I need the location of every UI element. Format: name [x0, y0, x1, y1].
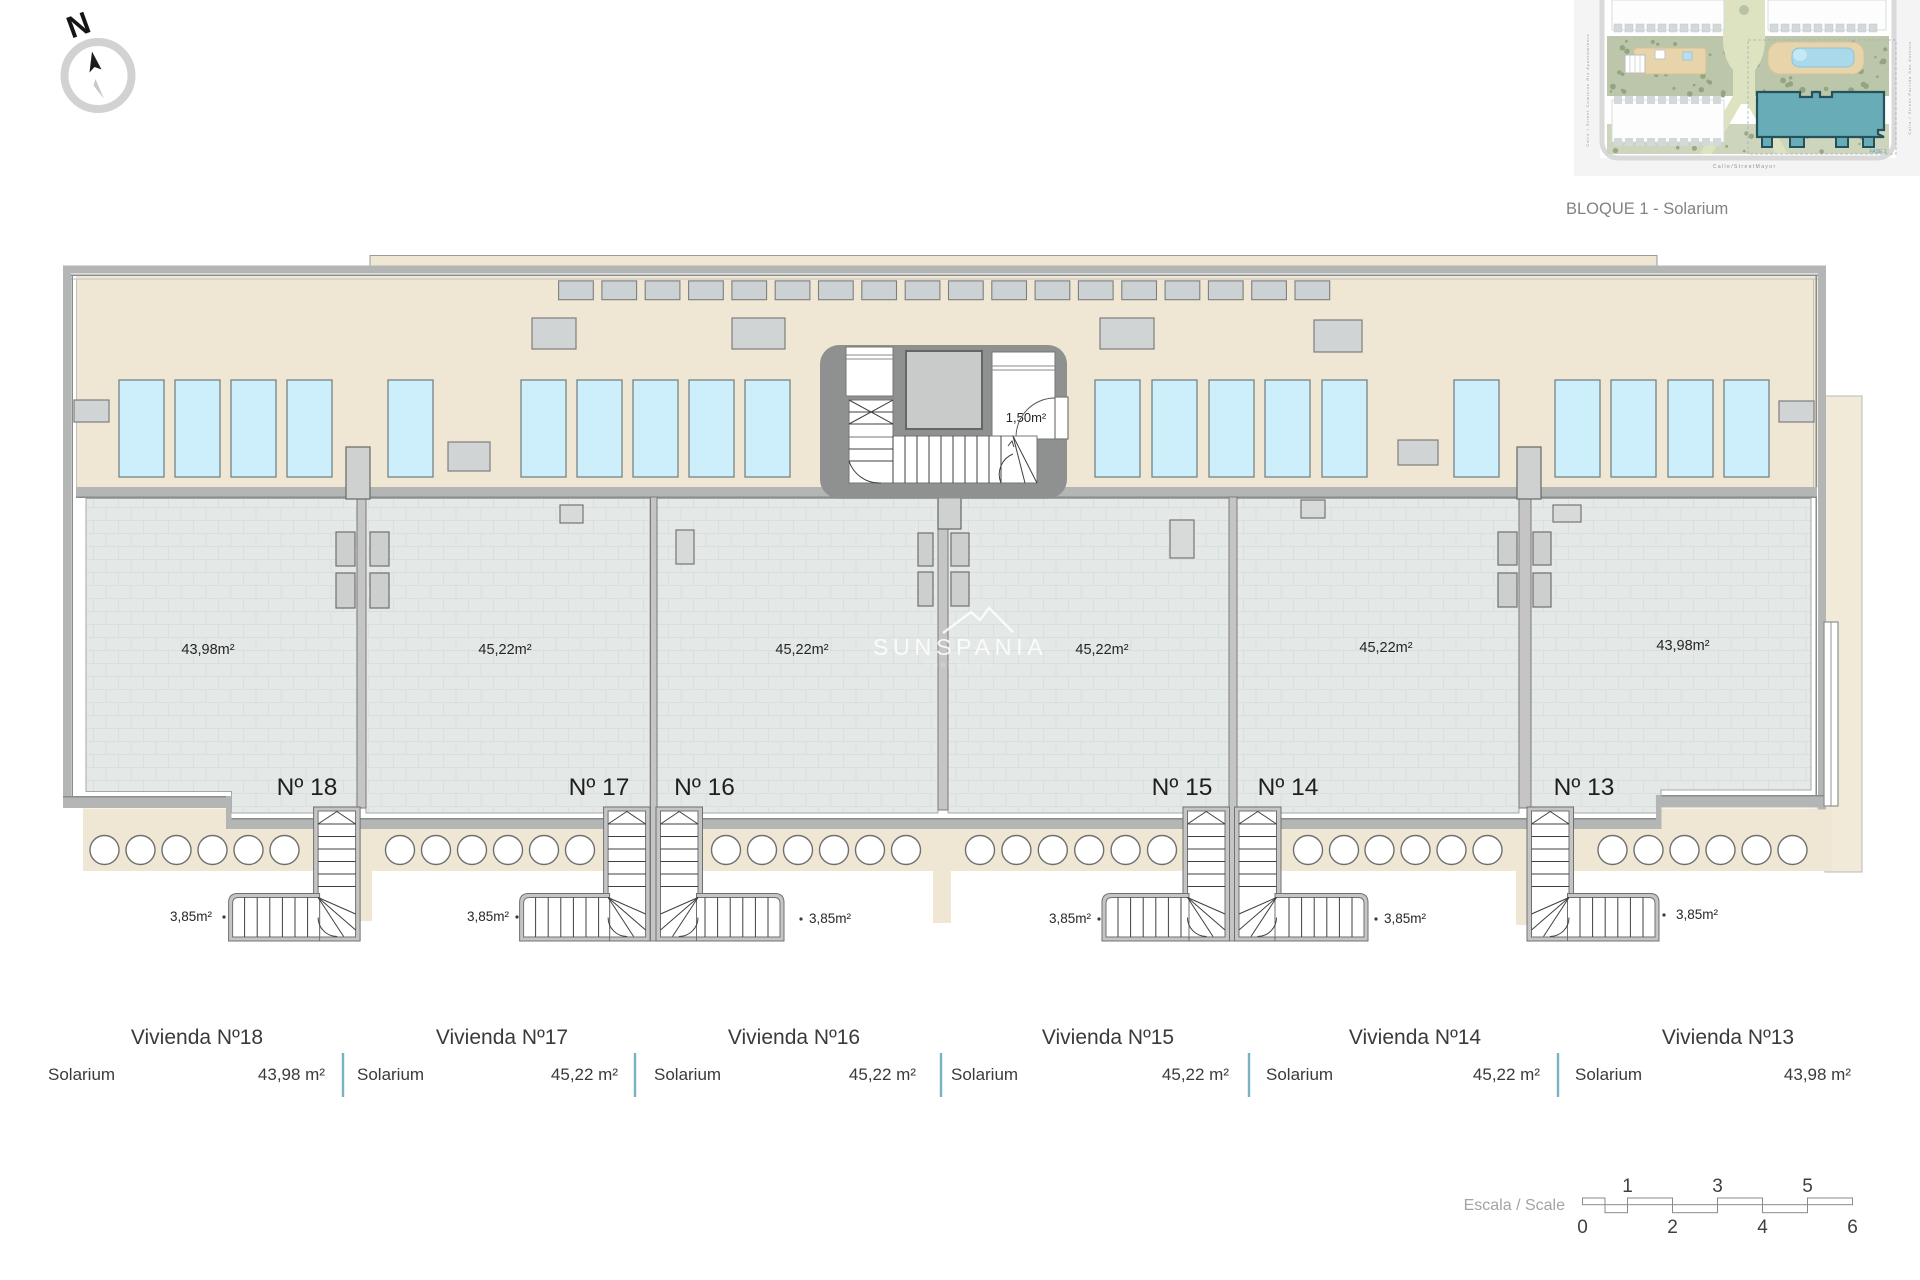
svg-text:Vivienda Nº16: Vivienda Nº16: [728, 1026, 860, 1049]
svg-text:45,22 m²: 45,22 m²: [849, 1065, 916, 1084]
svg-text:Solarium: Solarium: [48, 1065, 115, 1084]
svg-text:45,22m²: 45,22m²: [1075, 642, 1128, 658]
svg-text:3,85m²: 3,85m²: [1384, 911, 1427, 926]
svg-text:Real Estate: Real Estate: [926, 660, 995, 669]
svg-text:Nº 17: Nº 17: [569, 774, 630, 801]
svg-text:Vivienda Nº14: Vivienda Nº14: [1349, 1026, 1482, 1049]
svg-text:3,85m²: 3,85m²: [170, 909, 213, 924]
svg-text:Escala / Scale: Escala / Scale: [1464, 1197, 1565, 1214]
svg-text:43,98 m²: 43,98 m²: [1784, 1065, 1851, 1084]
svg-text:43,98m²: 43,98m²: [181, 642, 234, 658]
svg-text:1: 1: [1622, 1176, 1633, 1197]
svg-text:5: 5: [1802, 1176, 1813, 1197]
svg-text:Vivienda Nº17: Vivienda Nº17: [436, 1026, 568, 1049]
svg-text:3,85m²: 3,85m²: [467, 909, 510, 924]
svg-text:3: 3: [1712, 1176, 1723, 1197]
svg-text:2: 2: [1667, 1217, 1678, 1238]
svg-text:Nº 13: Nº 13: [1554, 774, 1615, 801]
svg-text:Nº 18: Nº 18: [277, 774, 338, 801]
svg-text:45,22 m²: 45,22 m²: [1162, 1065, 1229, 1084]
svg-text:Solarium: Solarium: [1266, 1065, 1333, 1084]
svg-text:Solarium: Solarium: [654, 1065, 721, 1084]
svg-text:SUNSPANIA: SUNSPANIA: [873, 634, 1048, 660]
svg-text:45,22m²: 45,22m²: [478, 642, 531, 658]
svg-text:Vivienda Nº18: Vivienda Nº18: [131, 1026, 263, 1049]
svg-text:6: 6: [1847, 1217, 1858, 1238]
svg-text:Calle / Street Partida San Ant: Calle / Street Partida San Antonio: [1907, 41, 1912, 135]
svg-text:Calle / Street Comision Rio Ay: Calle / Street Comision Rio Ayuntamiento: [1585, 33, 1590, 146]
svg-text:Vivienda Nº15: Vivienda Nº15: [1042, 1026, 1174, 1049]
svg-text:3,85m²: 3,85m²: [809, 911, 852, 926]
svg-text:Solarium: Solarium: [1575, 1065, 1642, 1084]
svg-text:FASE 1: FASE 1: [1870, 149, 1887, 155]
svg-text:45,22m²: 45,22m²: [775, 642, 828, 658]
svg-text:0: 0: [1577, 1217, 1588, 1238]
svg-text:43,98 m²: 43,98 m²: [258, 1065, 325, 1084]
svg-text:Solarium: Solarium: [951, 1065, 1018, 1084]
svg-text:BLOQUE 1 - Solarium: BLOQUE 1 - Solarium: [1566, 200, 1728, 218]
svg-text:Nº 14: Nº 14: [1258, 774, 1319, 801]
svg-text:3,85m²: 3,85m²: [1049, 911, 1092, 926]
svg-text:1,50m²: 1,50m²: [1006, 410, 1047, 425]
svg-text:45,22m²: 45,22m²: [1359, 640, 1412, 656]
svg-text:Vivienda Nº13: Vivienda Nº13: [1662, 1026, 1794, 1049]
svg-text:45,22 m²: 45,22 m²: [1473, 1065, 1540, 1084]
svg-text:C a l l e / S t r e e t: C a l l e / S t r e e t M a y o r: [1713, 164, 1776, 170]
svg-text:4: 4: [1757, 1217, 1768, 1238]
svg-text:Nº 15: Nº 15: [1152, 774, 1213, 801]
svg-text:Nº 16: Nº 16: [674, 774, 735, 801]
svg-text:43,98m²: 43,98m²: [1656, 638, 1709, 654]
svg-text:Solarium: Solarium: [357, 1065, 424, 1084]
svg-text:45,22 m²: 45,22 m²: [551, 1065, 618, 1084]
svg-text:3,85m²: 3,85m²: [1676, 907, 1719, 922]
